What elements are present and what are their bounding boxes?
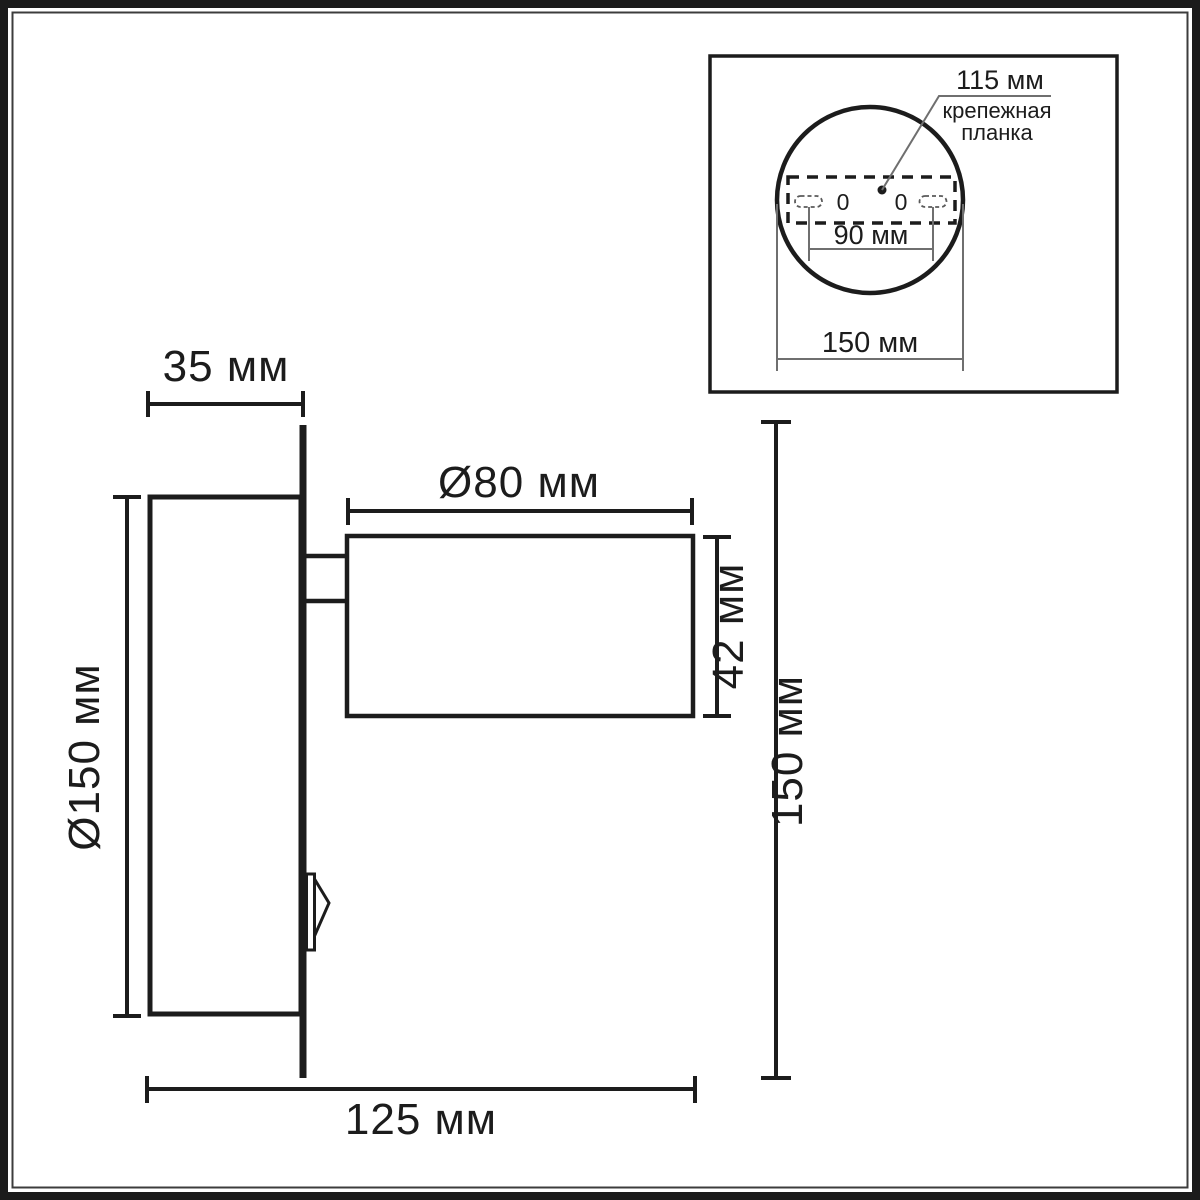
dim-plate-depth-lines <box>148 391 303 417</box>
lamp-head-rect <box>347 536 693 716</box>
hole-mark-right: 0 <box>895 189 908 215</box>
mount-arm-lines <box>303 556 347 601</box>
bracket-label-line2: планка <box>961 120 1033 145</box>
switch-knob <box>315 879 330 936</box>
dim-hole-spacing-label: 90 мм <box>834 220 909 250</box>
drawing-page: 35 мм Ø150 мм Ø80 мм 42 мм 150 мм 125 мм… <box>0 0 1200 1200</box>
dim-plate-diameter-lines <box>113 497 141 1016</box>
dimension-drawing-svg: 35 мм Ø150 мм Ø80 мм 42 мм 150 мм 125 мм… <box>0 0 1200 1200</box>
backplate-side-rect <box>150 497 301 1014</box>
dim-head-diameter-label: Ø80 мм <box>438 458 600 507</box>
dim-plate-depth-label: 35 мм <box>163 342 290 391</box>
hole-mark-left: 0 <box>837 189 850 215</box>
dim-overall-height-label: 150 мм <box>763 675 812 827</box>
dim-overall-width-label: 125 мм <box>345 1095 497 1144</box>
dim-bracket-width-label: 115 мм <box>956 65 1044 95</box>
dim-head-height-label: 42 мм <box>704 563 753 690</box>
dim-inset-plate-diameter-label: 150 мм <box>822 327 918 359</box>
dim-plate-diameter-label: Ø150 мм <box>60 663 109 850</box>
